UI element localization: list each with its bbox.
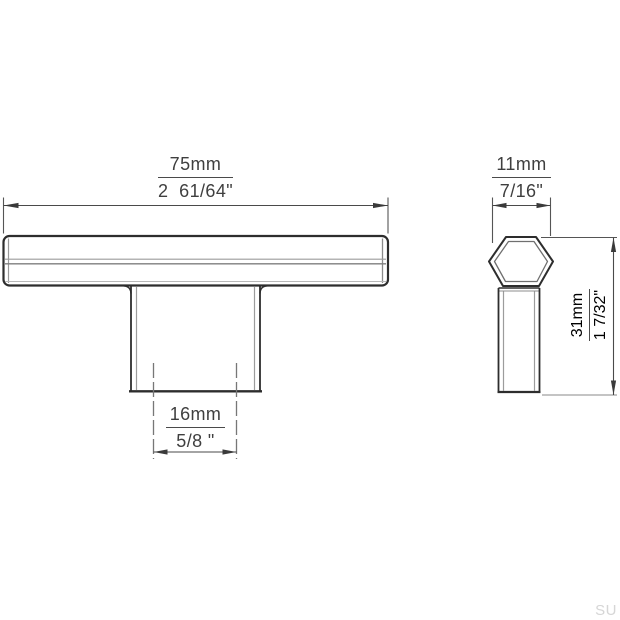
height-inch-value: 1 7/32" — [590, 289, 610, 341]
base-dimension-fraction: 16mm 5/8 " — [166, 403, 226, 452]
height-dimension-fraction: 31mm 1 7/32" — [569, 289, 610, 341]
technical-drawing-canvas: 75mm 2 61/64" 16mm 5/8 " 11mm 7/16" 31mm… — [0, 0, 620, 620]
height-arrow-top — [611, 238, 616, 253]
depth-inch-value: 7/16" — [492, 178, 550, 202]
width-inch-value: 2 61/64" — [158, 178, 233, 202]
depth-mm-value: 11mm — [492, 153, 550, 178]
base-mm-value: 16mm — [166, 403, 226, 428]
depth-arrow-right — [537, 203, 551, 208]
width-dimension-fraction: 75mm 2 61/64" — [158, 153, 233, 202]
height-arrow-bottom — [611, 381, 616, 396]
stem-right-fillet — [260, 286, 268, 294]
height-mm-value: 31mm — [569, 289, 590, 341]
width-dimension-label: 75mm 2 61/64" — [115, 153, 276, 202]
bar-outline — [4, 236, 389, 286]
depth-dimension-fraction: 11mm 7/16" — [492, 153, 550, 202]
width-arrow-right — [373, 203, 388, 208]
width-mm-value: 75mm — [158, 153, 233, 178]
base-inch-value: 5/8 " — [166, 428, 226, 452]
height-dimension-label: 31mm 1 7/32" — [565, 279, 613, 351]
stem-left-fillet — [124, 286, 132, 294]
width-arrow-left — [4, 203, 19, 208]
depth-dimension-label: 11mm 7/16" — [461, 153, 582, 202]
depth-arrow-left — [493, 203, 507, 208]
drawing-linework — [0, 0, 620, 620]
hex-head-outline — [489, 237, 553, 286]
watermark-text: SU — [595, 602, 617, 619]
base-dimension-label: 16mm 5/8 " — [135, 403, 256, 452]
